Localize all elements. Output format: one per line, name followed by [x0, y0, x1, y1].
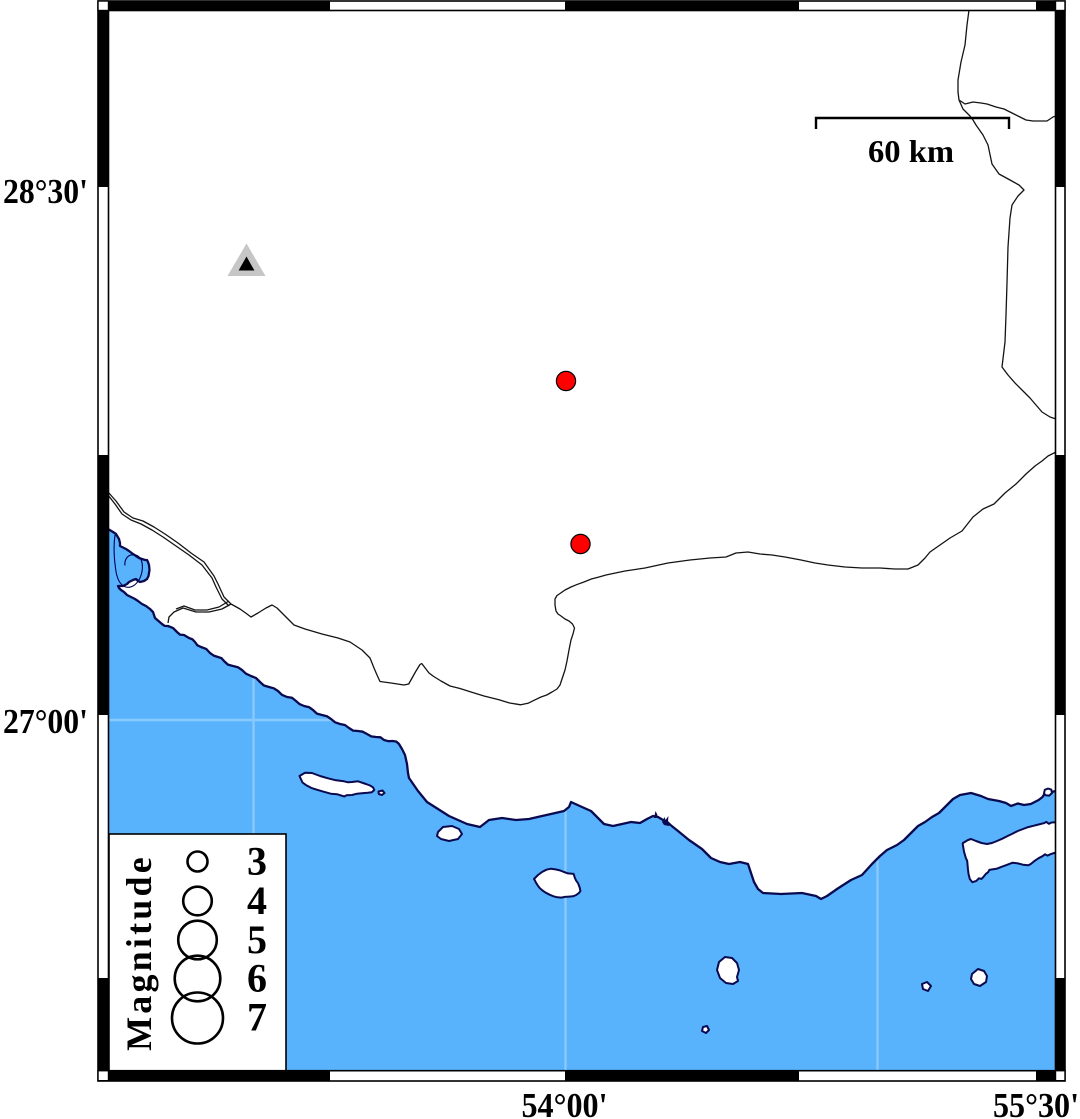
svg-text:54°00': 54°00' [522, 1086, 608, 1119]
svg-text:55°30': 55°30' [993, 1086, 1079, 1119]
svg-text:Magnitude: Magnitude [119, 854, 159, 1051]
svg-text:60 km: 60 km [868, 133, 954, 169]
svg-text:28°30': 28°30' [3, 172, 88, 211]
svg-text:7: 7 [247, 995, 267, 1040]
svg-text:27°00': 27°00' [3, 702, 88, 741]
svg-text:3: 3 [247, 839, 267, 884]
